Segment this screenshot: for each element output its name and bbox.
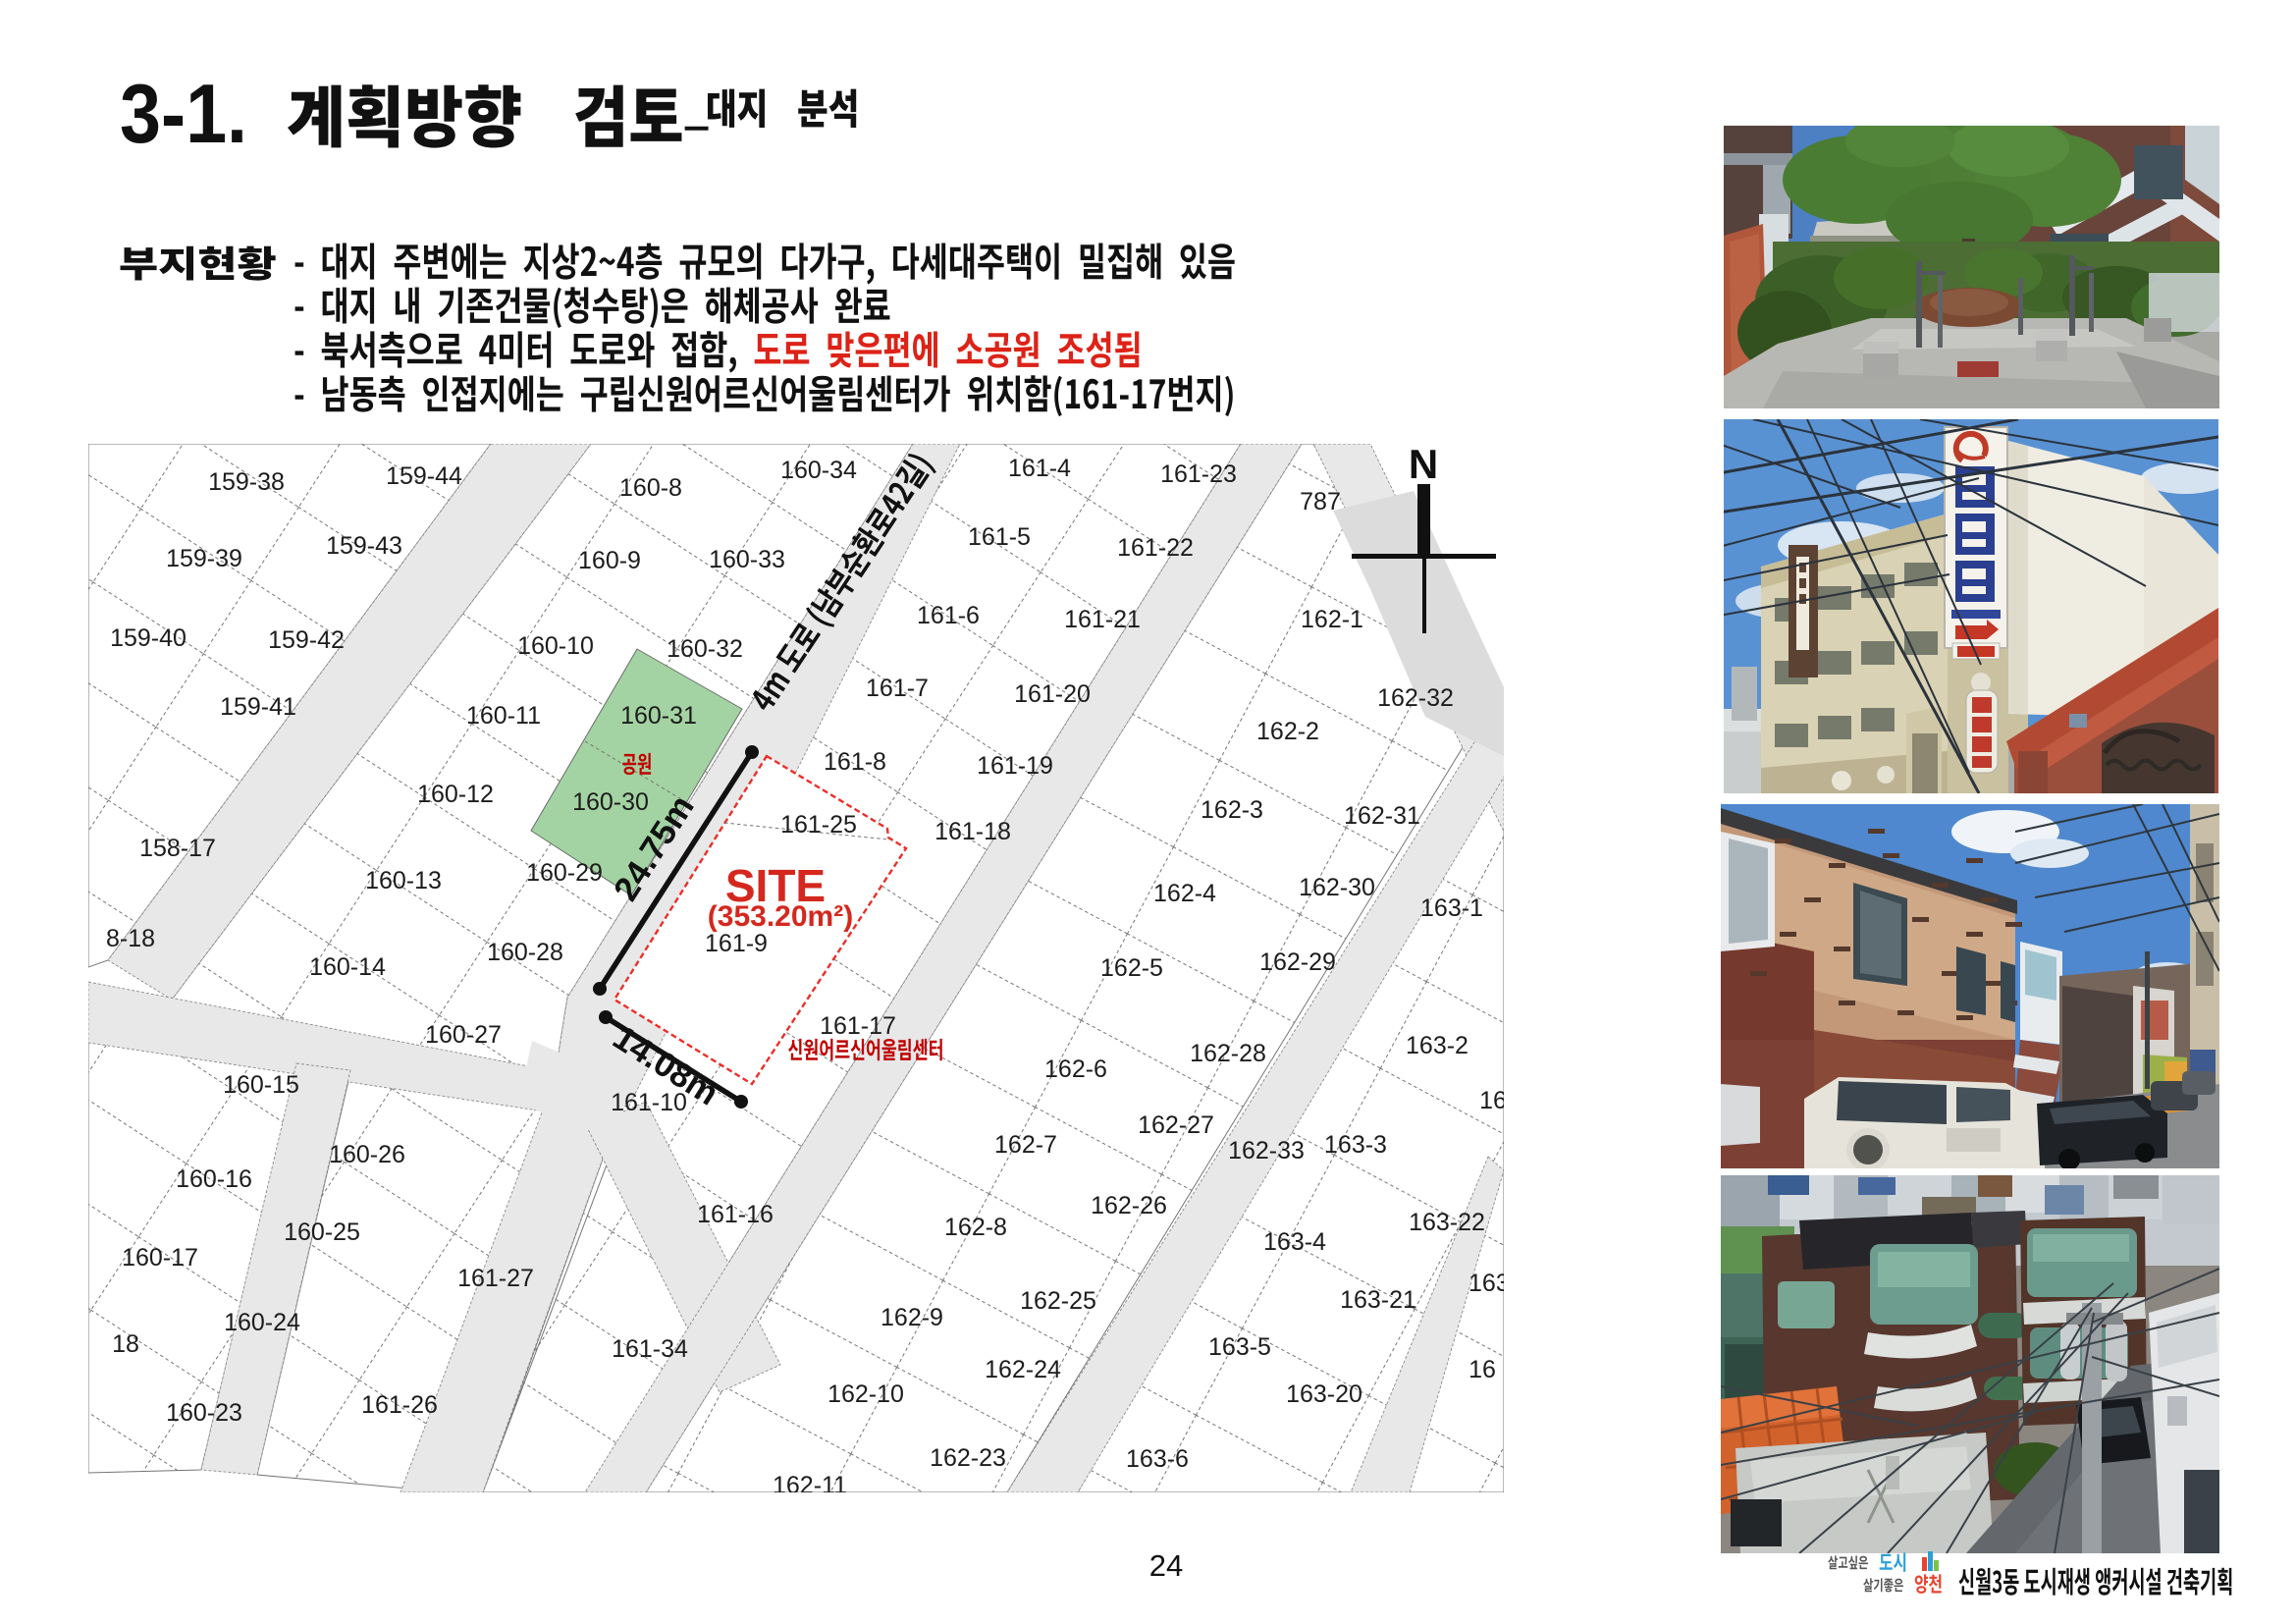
svg-text:160-13: 160-13 [365,867,442,894]
svg-text:160-31: 160-31 [620,702,697,730]
svg-text:162-27: 162-27 [1138,1111,1214,1139]
svg-text:162-8: 162-8 [944,1214,1007,1241]
svg-text:162-7: 162-7 [994,1131,1057,1159]
svg-text:162-9: 162-9 [881,1304,943,1331]
svg-text:162-31: 162-31 [1344,802,1420,830]
svg-text:163-22: 163-22 [1409,1209,1485,1236]
svg-text:162-29: 162-29 [1259,948,1336,976]
svg-text:(353.20m²): (353.20m²) [708,900,853,933]
svg-text:8-18: 8-18 [106,925,155,952]
svg-text:162-32: 162-32 [1377,684,1454,712]
svg-text:160-17: 160-17 [122,1244,198,1272]
svg-text:163-21: 163-21 [1340,1286,1416,1314]
svg-text:159-43: 159-43 [326,532,402,560]
svg-text:158-17: 158-17 [139,835,216,862]
svg-text:162-28: 162-28 [1190,1040,1266,1067]
svg-text:162-33: 162-33 [1228,1137,1305,1164]
svg-text:163-5: 163-5 [1208,1333,1271,1361]
svg-text:159-41: 159-41 [220,693,296,721]
svg-text:159-40: 159-40 [110,624,187,652]
svg-text:160-8: 160-8 [619,474,682,502]
svg-text:160-25: 160-25 [284,1218,360,1246]
svg-text:163-20: 163-20 [1286,1380,1362,1408]
svg-text:161-21: 161-21 [1064,606,1141,633]
svg-text:161-6: 161-6 [917,602,980,629]
svg-text:161-23: 161-23 [1160,460,1237,488]
svg-text:160-33: 160-33 [709,546,785,573]
svg-text:160-12: 160-12 [417,781,494,808]
svg-text:159-39: 159-39 [166,545,242,572]
svg-text:160-23: 160-23 [166,1399,242,1427]
svg-text:161-34: 161-34 [612,1335,688,1363]
svg-text:162-25: 162-25 [1020,1287,1096,1315]
svg-text:161-20: 161-20 [1014,680,1091,708]
svg-text:161-22: 161-22 [1117,534,1194,562]
svg-text:162-5: 162-5 [1100,954,1163,982]
svg-text:18: 18 [112,1330,139,1358]
svg-text:161-25: 161-25 [780,811,857,839]
svg-text:162-1: 162-1 [1301,606,1363,633]
svg-text:161-18: 161-18 [934,818,1011,845]
svg-text:161-19: 161-19 [977,752,1053,780]
svg-text:162-10: 162-10 [828,1380,904,1408]
svg-text:159-44: 159-44 [386,462,462,490]
svg-text:162-2: 162-2 [1256,718,1319,745]
svg-text:163-6: 163-6 [1126,1445,1189,1473]
svg-text:163-1: 163-1 [1420,894,1483,922]
svg-text:160-27: 160-27 [425,1021,502,1049]
svg-text:162-30: 162-30 [1299,874,1375,901]
svg-text:787: 787 [1300,488,1341,515]
svg-text:160-29: 160-29 [526,859,603,887]
svg-text:160-30: 160-30 [572,788,649,816]
svg-text:159-38: 159-38 [208,468,285,496]
svg-text:161-9: 161-9 [705,930,768,957]
svg-text:163-2: 163-2 [1406,1032,1468,1059]
svg-text:161-10: 161-10 [611,1089,687,1116]
svg-text:160-15: 160-15 [223,1071,299,1099]
svg-text:160-14: 160-14 [309,953,386,981]
svg-text:160-11: 160-11 [466,702,541,730]
svg-text:161-26: 161-26 [361,1391,438,1419]
svg-text:161-5: 161-5 [968,523,1031,551]
svg-text:161-8: 161-8 [824,748,886,776]
svg-text:16: 16 [1468,1356,1496,1383]
svg-text:160-16: 160-16 [176,1165,252,1193]
svg-text:162-4: 162-4 [1153,880,1216,907]
svg-text:160-24: 160-24 [224,1309,300,1336]
svg-text:160-26: 160-26 [329,1141,405,1168]
svg-text:N: N [1409,441,1438,487]
svg-text:162-3: 162-3 [1201,796,1263,824]
svg-text:161-7: 161-7 [866,675,929,702]
svg-text:162-23: 162-23 [930,1444,1006,1472]
svg-text:161-4: 161-4 [1008,455,1071,482]
svg-text:160-9: 160-9 [578,547,641,574]
svg-text:161-16: 161-16 [697,1201,774,1228]
svg-text:160-10: 160-10 [517,632,594,660]
svg-text:162-24: 162-24 [985,1356,1061,1383]
svg-text:163-3: 163-3 [1324,1131,1387,1159]
svg-text:160-28: 160-28 [487,939,563,966]
svg-text:160-32: 160-32 [667,635,743,663]
svg-text:159-42: 159-42 [268,626,345,654]
svg-text:3-1.: 3-1. [120,68,247,161]
svg-text:161-17: 161-17 [820,1012,896,1040]
svg-text:162-26: 162-26 [1091,1192,1167,1219]
svg-text:24: 24 [1149,1548,1183,1583]
svg-text:161-27: 161-27 [457,1265,534,1292]
svg-text:163-4: 163-4 [1263,1228,1326,1256]
svg-text:160-34: 160-34 [780,457,857,484]
svg-text:162-6: 162-6 [1044,1056,1107,1083]
